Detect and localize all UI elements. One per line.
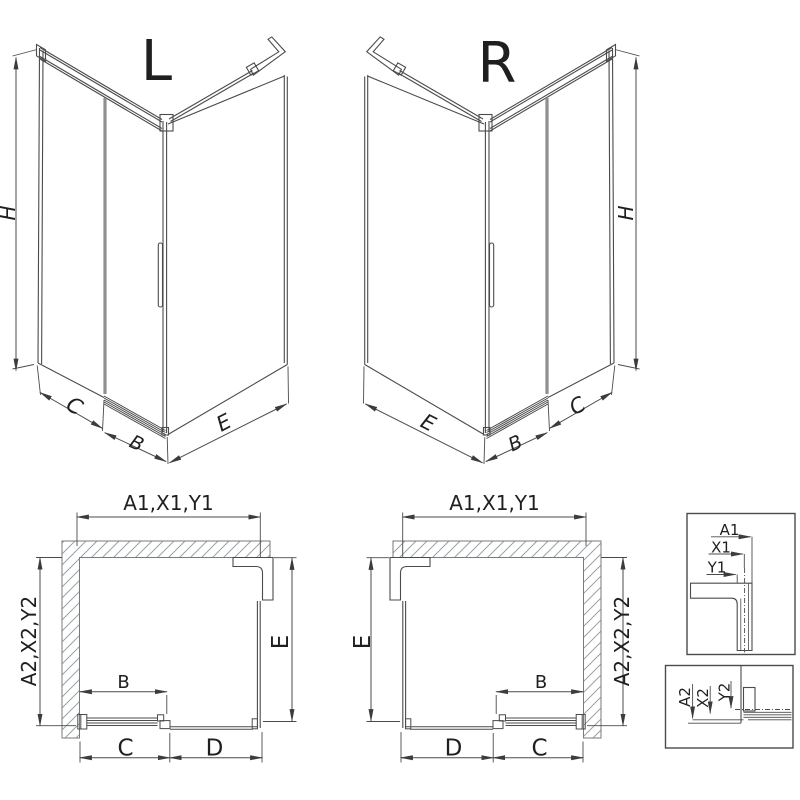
iso-left-dim-e: E xyxy=(212,409,235,437)
plan-right-dim-e: E xyxy=(350,635,376,650)
plan-left-dim-a1: A1,X1,Y1 xyxy=(123,491,214,515)
plan-left-dim-b: B xyxy=(117,672,129,693)
detail-corner-profile xyxy=(691,583,753,650)
iso-left-dim-h: H xyxy=(0,205,20,220)
plan-right-dim-a2: A2,X2,Y2 xyxy=(610,596,634,687)
iso-right-dim-e: E xyxy=(417,409,440,437)
detail-bottom-dim-a2: A2 xyxy=(676,687,694,707)
technical-drawing-page: L H C B E R H C B E A1,X1,Y1 A2,X2,Y2 E … xyxy=(0,0,800,800)
view-label-left: L xyxy=(141,29,172,94)
wall-left-plan xyxy=(62,541,270,738)
iso-left-dim-c: C xyxy=(62,392,87,420)
plan-right-dim-a1: A1,X1,Y1 xyxy=(449,491,540,515)
detail-rail-bracket xyxy=(744,688,756,712)
drawing-labels: L H C B E R H C B E A1,X1,Y1 A2,X2,Y2 E … xyxy=(0,29,739,762)
wall-right-plan xyxy=(393,541,601,738)
view-label-right: R xyxy=(478,31,517,96)
detail-glass-offsets xyxy=(687,514,795,655)
plan-right-dim-c: C xyxy=(531,736,547,762)
iso-right-view xyxy=(364,37,640,464)
plan-right-dim-b: B xyxy=(535,672,547,693)
detail-bottom-dim-y2: Y2 xyxy=(716,683,734,703)
plan-left-dim-c: C xyxy=(117,736,133,762)
detail-top-dim-x1: X1 xyxy=(711,539,731,557)
iso-left-dim-b: B xyxy=(126,431,147,456)
detail-top-dim-y1: Y1 xyxy=(707,559,727,577)
plan-left-dim-e: E xyxy=(268,635,294,650)
iso-right-dim-b: B xyxy=(505,431,526,456)
detail-top-dim-a1: A1 xyxy=(720,521,740,539)
detail-bottom-dim-x2: X2 xyxy=(694,688,712,708)
plan-left-dim-d: D xyxy=(206,736,224,762)
iso-right-dim-c: C xyxy=(565,392,590,420)
plan-right-dim-d: D xyxy=(445,736,463,762)
iso-right-dim-h: H xyxy=(614,205,638,220)
shower-enclosure-diagram: L H C B E R H C B E A1,X1,Y1 A2,X2,Y2 E … xyxy=(0,0,800,800)
iso-left-view xyxy=(13,37,289,464)
plan-left-dim-a2: A2,X2,Y2 xyxy=(17,596,41,687)
